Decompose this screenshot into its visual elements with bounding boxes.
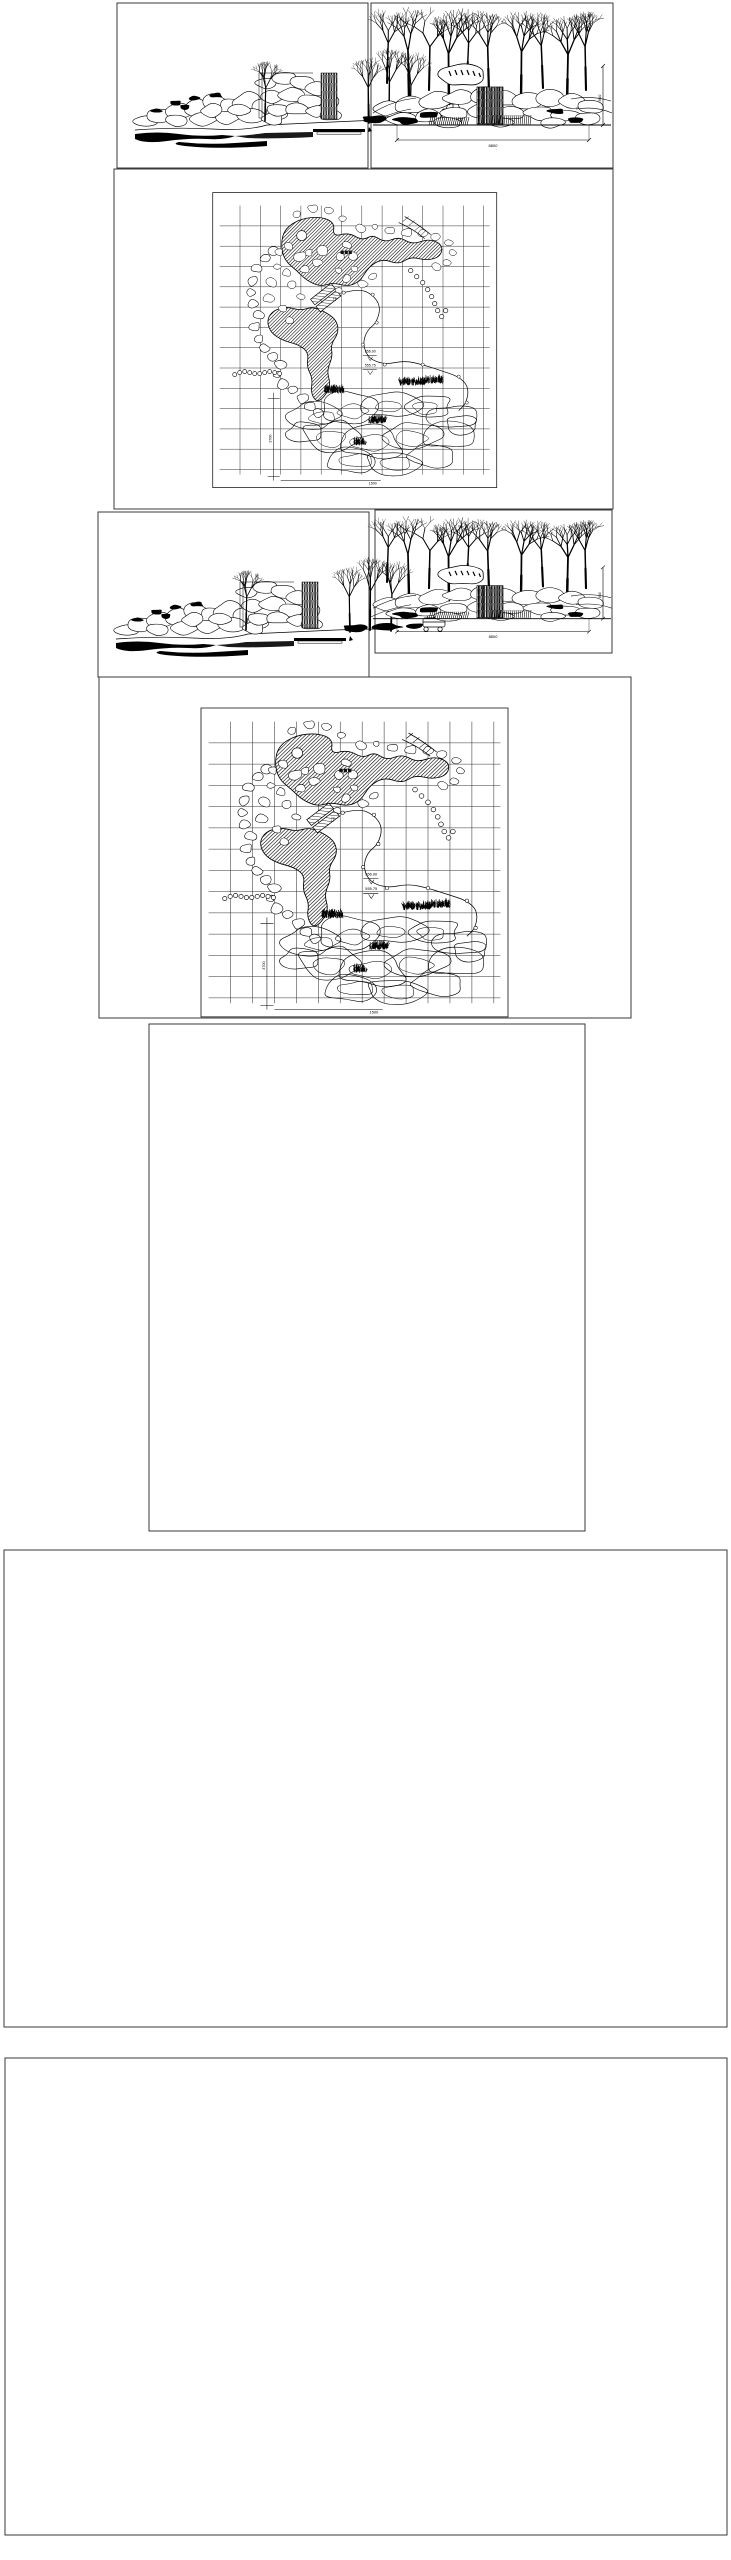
svg-text:8800: 8800 [489,635,498,639]
svg-text:800: 800 [597,94,602,101]
svg-text:555.75: 555.75 [365,887,377,891]
svg-text:556.00: 556.00 [365,873,377,877]
svg-text:1500: 1500 [369,482,377,486]
svg-text:555.75: 555.75 [365,364,376,368]
svg-text:3700: 3700 [269,435,273,443]
svg-text:汀: 汀 [333,296,337,302]
svg-text:汀: 汀 [331,816,336,822]
svg-text:3700: 3700 [262,961,266,969]
svg-text:8800: 8800 [489,143,499,148]
svg-text:800: 800 [598,592,602,598]
svg-text:556.00: 556.00 [365,350,376,354]
svg-text:1500: 1500 [370,1011,379,1015]
